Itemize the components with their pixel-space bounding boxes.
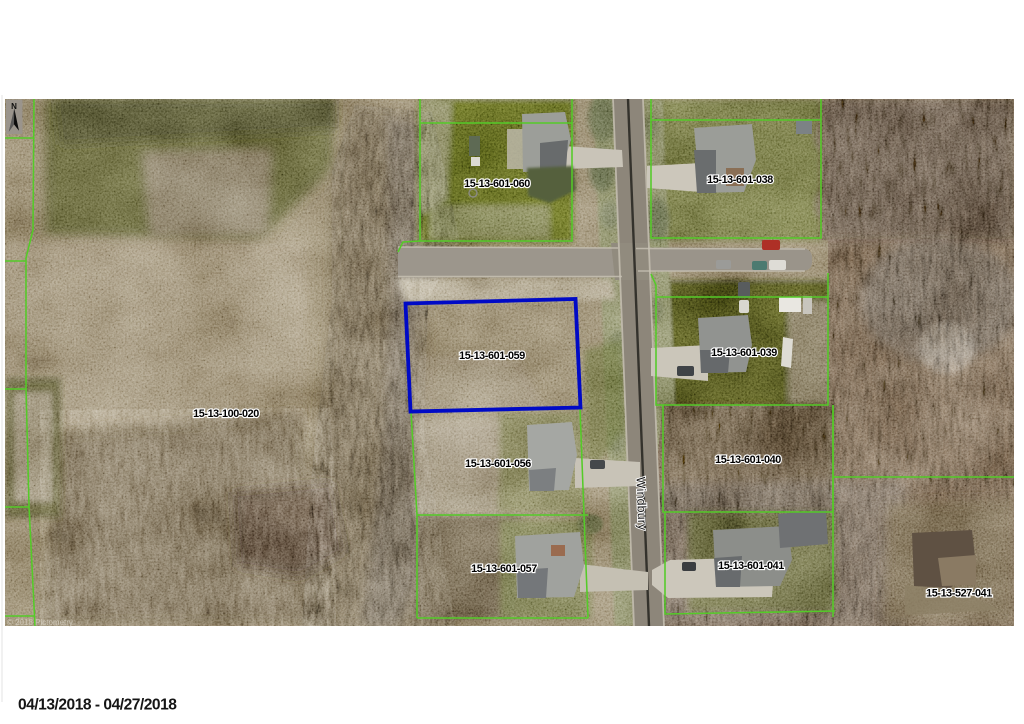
svg-text:15-13-601-056: 15-13-601-056 [465, 458, 531, 470]
svg-text:15-13-601-039: 15-13-601-039 [711, 347, 777, 359]
svg-text:15-13-601-038: 15-13-601-038 [707, 174, 773, 186]
svg-text:15-13-601-041: 15-13-601-041 [718, 560, 784, 572]
svg-text:Windbury: Windbury [634, 477, 650, 532]
svg-text:15-13-601-057: 15-13-601-057 [471, 563, 537, 575]
svg-text:04/13/2018 - 04/27/2018: 04/13/2018 - 04/27/2018 [18, 697, 177, 714]
svg-text:15-13-601-059: 15-13-601-059 [459, 350, 525, 362]
svg-text:15-13-601-040: 15-13-601-040 [715, 454, 781, 466]
svg-text:15-13-601-060: 15-13-601-060 [464, 178, 530, 190]
svg-text:15-13-527-041: 15-13-527-041 [926, 588, 992, 600]
svg-text:© 2018 Pictometry: © 2018 Pictometry [7, 618, 73, 627]
svg-text:15-13-100-020: 15-13-100-020 [193, 408, 259, 420]
